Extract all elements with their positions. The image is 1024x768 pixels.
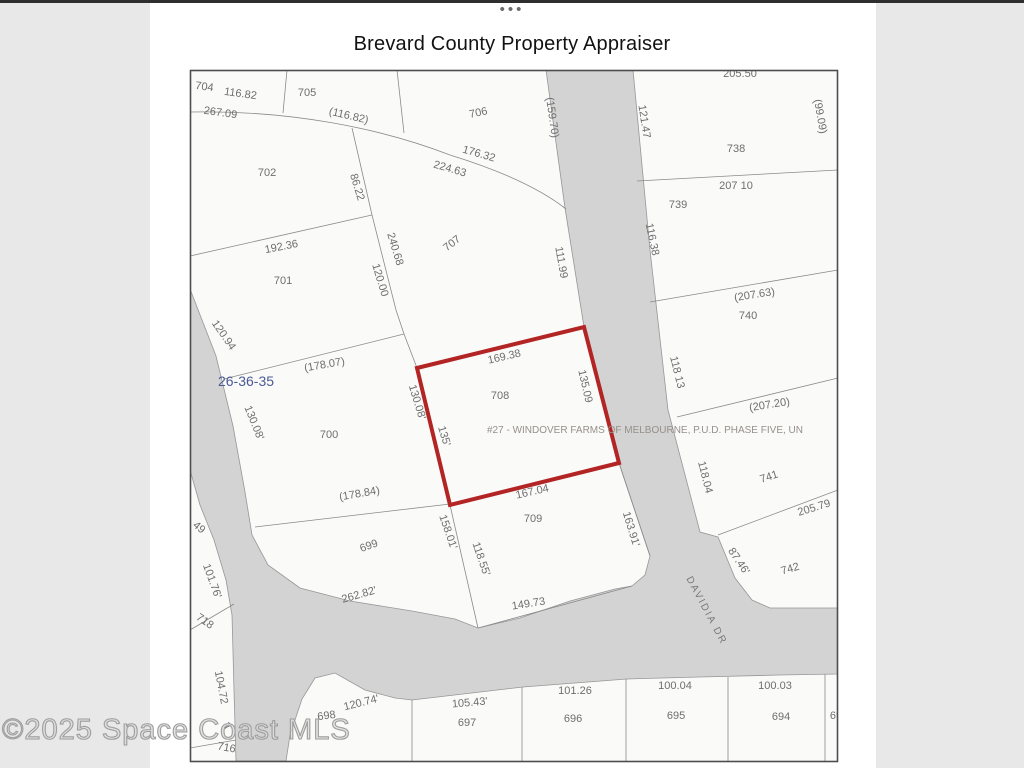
parcel-map[interactable]: 704116.82267.09705(116.82)706176.32224.6… [0, 0, 1024, 768]
map-label: 694 [772, 711, 790, 723]
map-label: #27 - WINDOVER FARMS OF MELBOURNE, P.U.D… [487, 425, 803, 436]
map-label: 701 [274, 275, 292, 287]
map-label: 702 [258, 167, 276, 179]
map-label: 739 [669, 199, 687, 211]
map-label: 704 [194, 80, 214, 94]
map-label: 709 [524, 513, 542, 525]
map-label: 697 [458, 717, 476, 729]
map-label: 738 [727, 143, 745, 155]
map-label: 696 [564, 713, 582, 725]
map-label: 100.04 [658, 680, 692, 692]
map-label: 26-36-35 [218, 373, 274, 389]
map-label: 700 [320, 429, 338, 441]
map-label: 705 [298, 87, 316, 99]
map-label: 69 [830, 710, 842, 722]
map-label: 695 [667, 710, 685, 722]
map-label: 740 [739, 310, 757, 322]
map-label: 207 10 [719, 180, 753, 192]
map-label: 698 [317, 709, 337, 723]
map-label: 708 [491, 390, 509, 402]
map-label: 100.03 [758, 680, 792, 692]
map-label: 101.26 [558, 685, 592, 697]
